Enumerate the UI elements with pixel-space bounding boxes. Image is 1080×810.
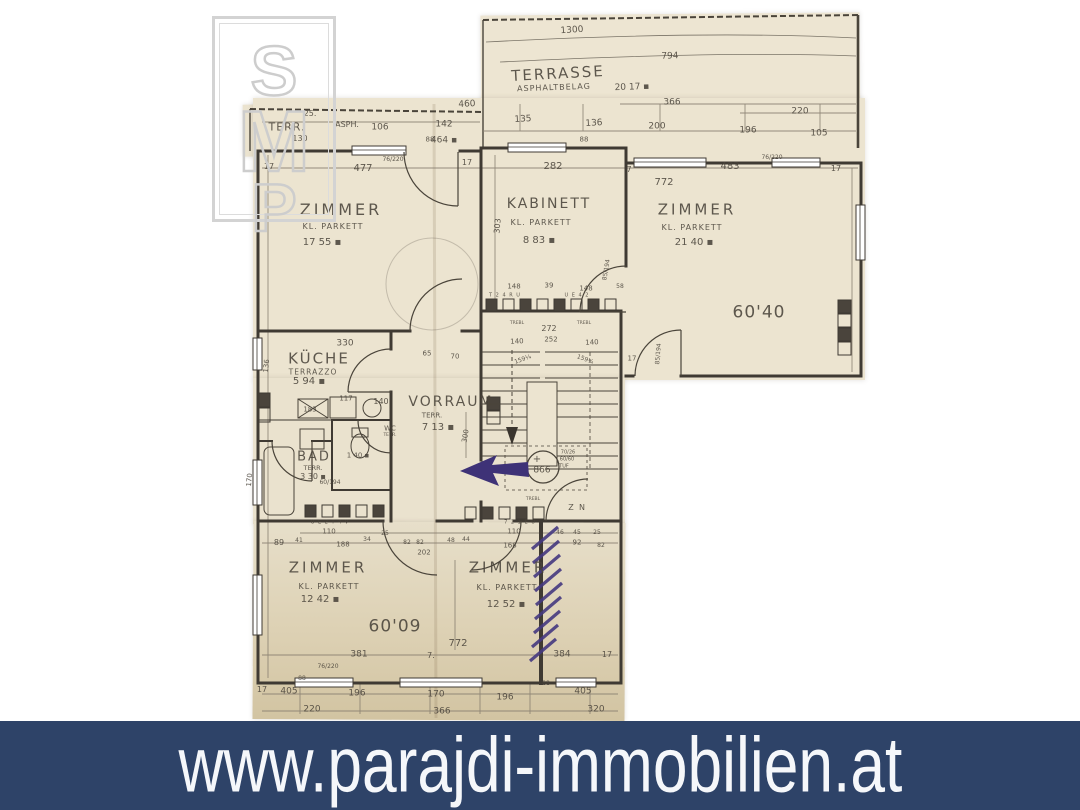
- plan-text: 34: [363, 537, 371, 543]
- plan-text: 58: [616, 284, 624, 290]
- plan-text: TERR.: [383, 434, 396, 439]
- plan-text: 21 40 ▪: [675, 238, 714, 248]
- plan-text: ZIMMER: [658, 203, 736, 218]
- plan-text: 220: [303, 706, 320, 715]
- plan-text: 5 94 ▪: [293, 377, 325, 387]
- plan-text: T 2 4 R U: [489, 294, 521, 299]
- plan-text: 140: [373, 398, 388, 406]
- plan-text: 17: [602, 651, 612, 659]
- plan-text: 772: [654, 178, 673, 188]
- plan-text: 170: [246, 473, 254, 487]
- plan-text: 117: [339, 396, 352, 403]
- plan-text: 70/26: [561, 451, 575, 456]
- plan-text: 142: [435, 121, 452, 130]
- plan-text: 140: [510, 338, 524, 346]
- plan-text: ZIMMER: [469, 561, 547, 576]
- plan-text: 82: [416, 540, 424, 546]
- plan-text: 46: [556, 530, 564, 536]
- plan-text: 17: [628, 356, 637, 363]
- plan-text: KL. PARKETT: [510, 219, 571, 227]
- real-estate-floorplan-image: 1300794TERRASSEASPHALTBELAG20 17 ▪366220…: [0, 0, 1080, 810]
- plan-text: 7 13 ▪: [422, 423, 454, 433]
- plan-text: 1 40 ▪: [347, 453, 370, 460]
- plan-text: 196: [496, 694, 513, 703]
- plan-text: 82: [597, 543, 605, 549]
- plan-text: 88: [542, 681, 550, 687]
- plan-text: TERR.: [422, 413, 442, 420]
- plan-text: KABINETT: [507, 197, 591, 211]
- plan-text: BAD: [297, 451, 331, 464]
- plan-text: 483: [720, 162, 739, 172]
- plan-text: 65: [423, 351, 432, 358]
- plan-text: 85/194: [655, 343, 663, 365]
- plan-text: N: [579, 504, 585, 512]
- plan-text: 405: [280, 688, 297, 697]
- plan-text: 135: [514, 115, 532, 125]
- plan-text: 464 ▪: [431, 137, 457, 146]
- plan-text: 381: [350, 651, 367, 660]
- plan-text: U E 2 T 4 V: [311, 521, 350, 526]
- plan-text: U E 4 2: [565, 294, 590, 299]
- plan-text: KÜCHE: [288, 352, 350, 367]
- watermark-letter: P: [215, 169, 333, 247]
- plan-text: TERR.: [304, 465, 323, 472]
- plan-text: VORRAUM: [408, 395, 493, 409]
- plan-text: 202: [417, 550, 430, 557]
- plan-text: 366: [433, 708, 450, 717]
- plan-text: 200: [648, 123, 665, 132]
- plan-text: +: [533, 455, 541, 465]
- plan-text: 20 17 ▪: [614, 83, 649, 93]
- plan-text: 92: [573, 540, 582, 547]
- plan-text: 196: [348, 690, 365, 699]
- plan-text: 48: [447, 538, 455, 544]
- plan-text: 17: [462, 159, 472, 167]
- plan-text: 7.: [427, 652, 435, 660]
- plan-text: 320: [587, 706, 604, 715]
- plan-text: 25: [593, 530, 601, 536]
- plan-text: 44: [462, 537, 470, 543]
- plan-text: KL. PARKETT: [661, 224, 722, 232]
- plan-text: 159¼: [576, 354, 594, 366]
- plan-text: ASPH.: [335, 121, 359, 129]
- plan-text: 1300: [560, 26, 583, 37]
- plan-text: 168: [503, 543, 516, 550]
- plan-text: 140: [585, 339, 599, 347]
- plan-text: 110: [322, 529, 335, 536]
- plan-text: 82: [403, 540, 411, 546]
- plan-text: 794: [661, 52, 678, 62]
- plan-text-layer: 1300794TERRASSEASPHALTBELAG20 17 ▪366220…: [0, 0, 1080, 810]
- plan-text: 85/194: [602, 259, 612, 281]
- plan-text: ASPHALTBELAG: [517, 83, 591, 94]
- plan-text: 12 42 ▪: [301, 595, 340, 605]
- plan-text: 7: [626, 166, 631, 174]
- plan-text: 60'09: [369, 619, 422, 636]
- plan-text: 88: [298, 676, 306, 682]
- plan-text: 17: [257, 686, 267, 694]
- plan-text: 70: [451, 354, 460, 361]
- plan-text: TREBL: [577, 322, 591, 327]
- plan-text: TERRAZZO: [289, 368, 338, 376]
- plan-text: 252: [544, 337, 557, 344]
- plan-text: 45: [573, 530, 581, 536]
- plan-text: 196: [739, 127, 756, 136]
- plan-text: 105: [810, 130, 827, 139]
- smp-watermark-logo: S M P: [212, 16, 336, 222]
- plan-text: 772: [448, 639, 467, 649]
- plan-text: 405: [574, 688, 591, 697]
- plan-text: 41: [295, 538, 303, 544]
- plan-text: KL. PARKETT: [476, 584, 537, 592]
- plan-text: 384: [553, 651, 570, 660]
- plan-text: 183: [303, 407, 316, 414]
- plan-text: 136: [585, 119, 603, 129]
- plan-text: TREBL: [526, 498, 540, 503]
- plan-text: 366: [663, 99, 680, 108]
- plan-text: 460: [458, 100, 476, 110]
- plan-text: 159¼: [514, 354, 532, 366]
- plan-text: 60/60: [560, 458, 574, 463]
- plan-text: 60/194: [319, 480, 340, 486]
- plan-text: TREBL: [510, 322, 524, 327]
- plan-text: TUF: [559, 465, 569, 470]
- plan-text: 866: [533, 467, 550, 476]
- plan-text: 76/220: [382, 157, 403, 163]
- plan-text: TERRASSE: [511, 64, 605, 84]
- plan-text: 76/220: [761, 155, 782, 161]
- plan-text: WC: [384, 426, 396, 433]
- website-banner: www.parajdi-immobilien.at: [0, 721, 1080, 810]
- plan-text: 188: [336, 542, 349, 549]
- plan-text: KL. PARKETT: [298, 583, 359, 591]
- plan-text: 106: [371, 124, 388, 133]
- plan-text: 76/220: [317, 664, 338, 670]
- plan-text: 300: [461, 429, 470, 443]
- plan-text: 88: [580, 137, 589, 144]
- plan-text: 148: [579, 286, 592, 293]
- plan-text: 272: [541, 325, 556, 333]
- plan-text: 477: [353, 164, 372, 174]
- plan-text: 8 83 ▪: [523, 236, 555, 246]
- plan-text: 148: [507, 284, 520, 291]
- plan-text: 110: [507, 529, 520, 536]
- plan-text: 330: [336, 340, 353, 349]
- plan-text: 39: [545, 283, 554, 290]
- plan-text: 7 2 1 E U: [504, 521, 536, 526]
- plan-text: 60'40: [733, 305, 786, 322]
- plan-text: 89: [274, 539, 284, 547]
- plan-text: 12 52 ▪: [487, 600, 526, 610]
- plan-text: 136: [263, 359, 271, 373]
- plan-text: 25: [381, 531, 389, 537]
- plan-text: Z: [568, 504, 573, 512]
- plan-text: 170: [427, 691, 444, 700]
- plan-text: 220: [791, 108, 808, 117]
- plan-text: 282: [543, 162, 562, 172]
- website-url: www.parajdi-immobilien.at: [178, 721, 902, 810]
- plan-text: 17: [831, 165, 841, 173]
- plan-text: 303: [493, 218, 502, 234]
- plan-text: ZIMMER: [289, 561, 367, 576]
